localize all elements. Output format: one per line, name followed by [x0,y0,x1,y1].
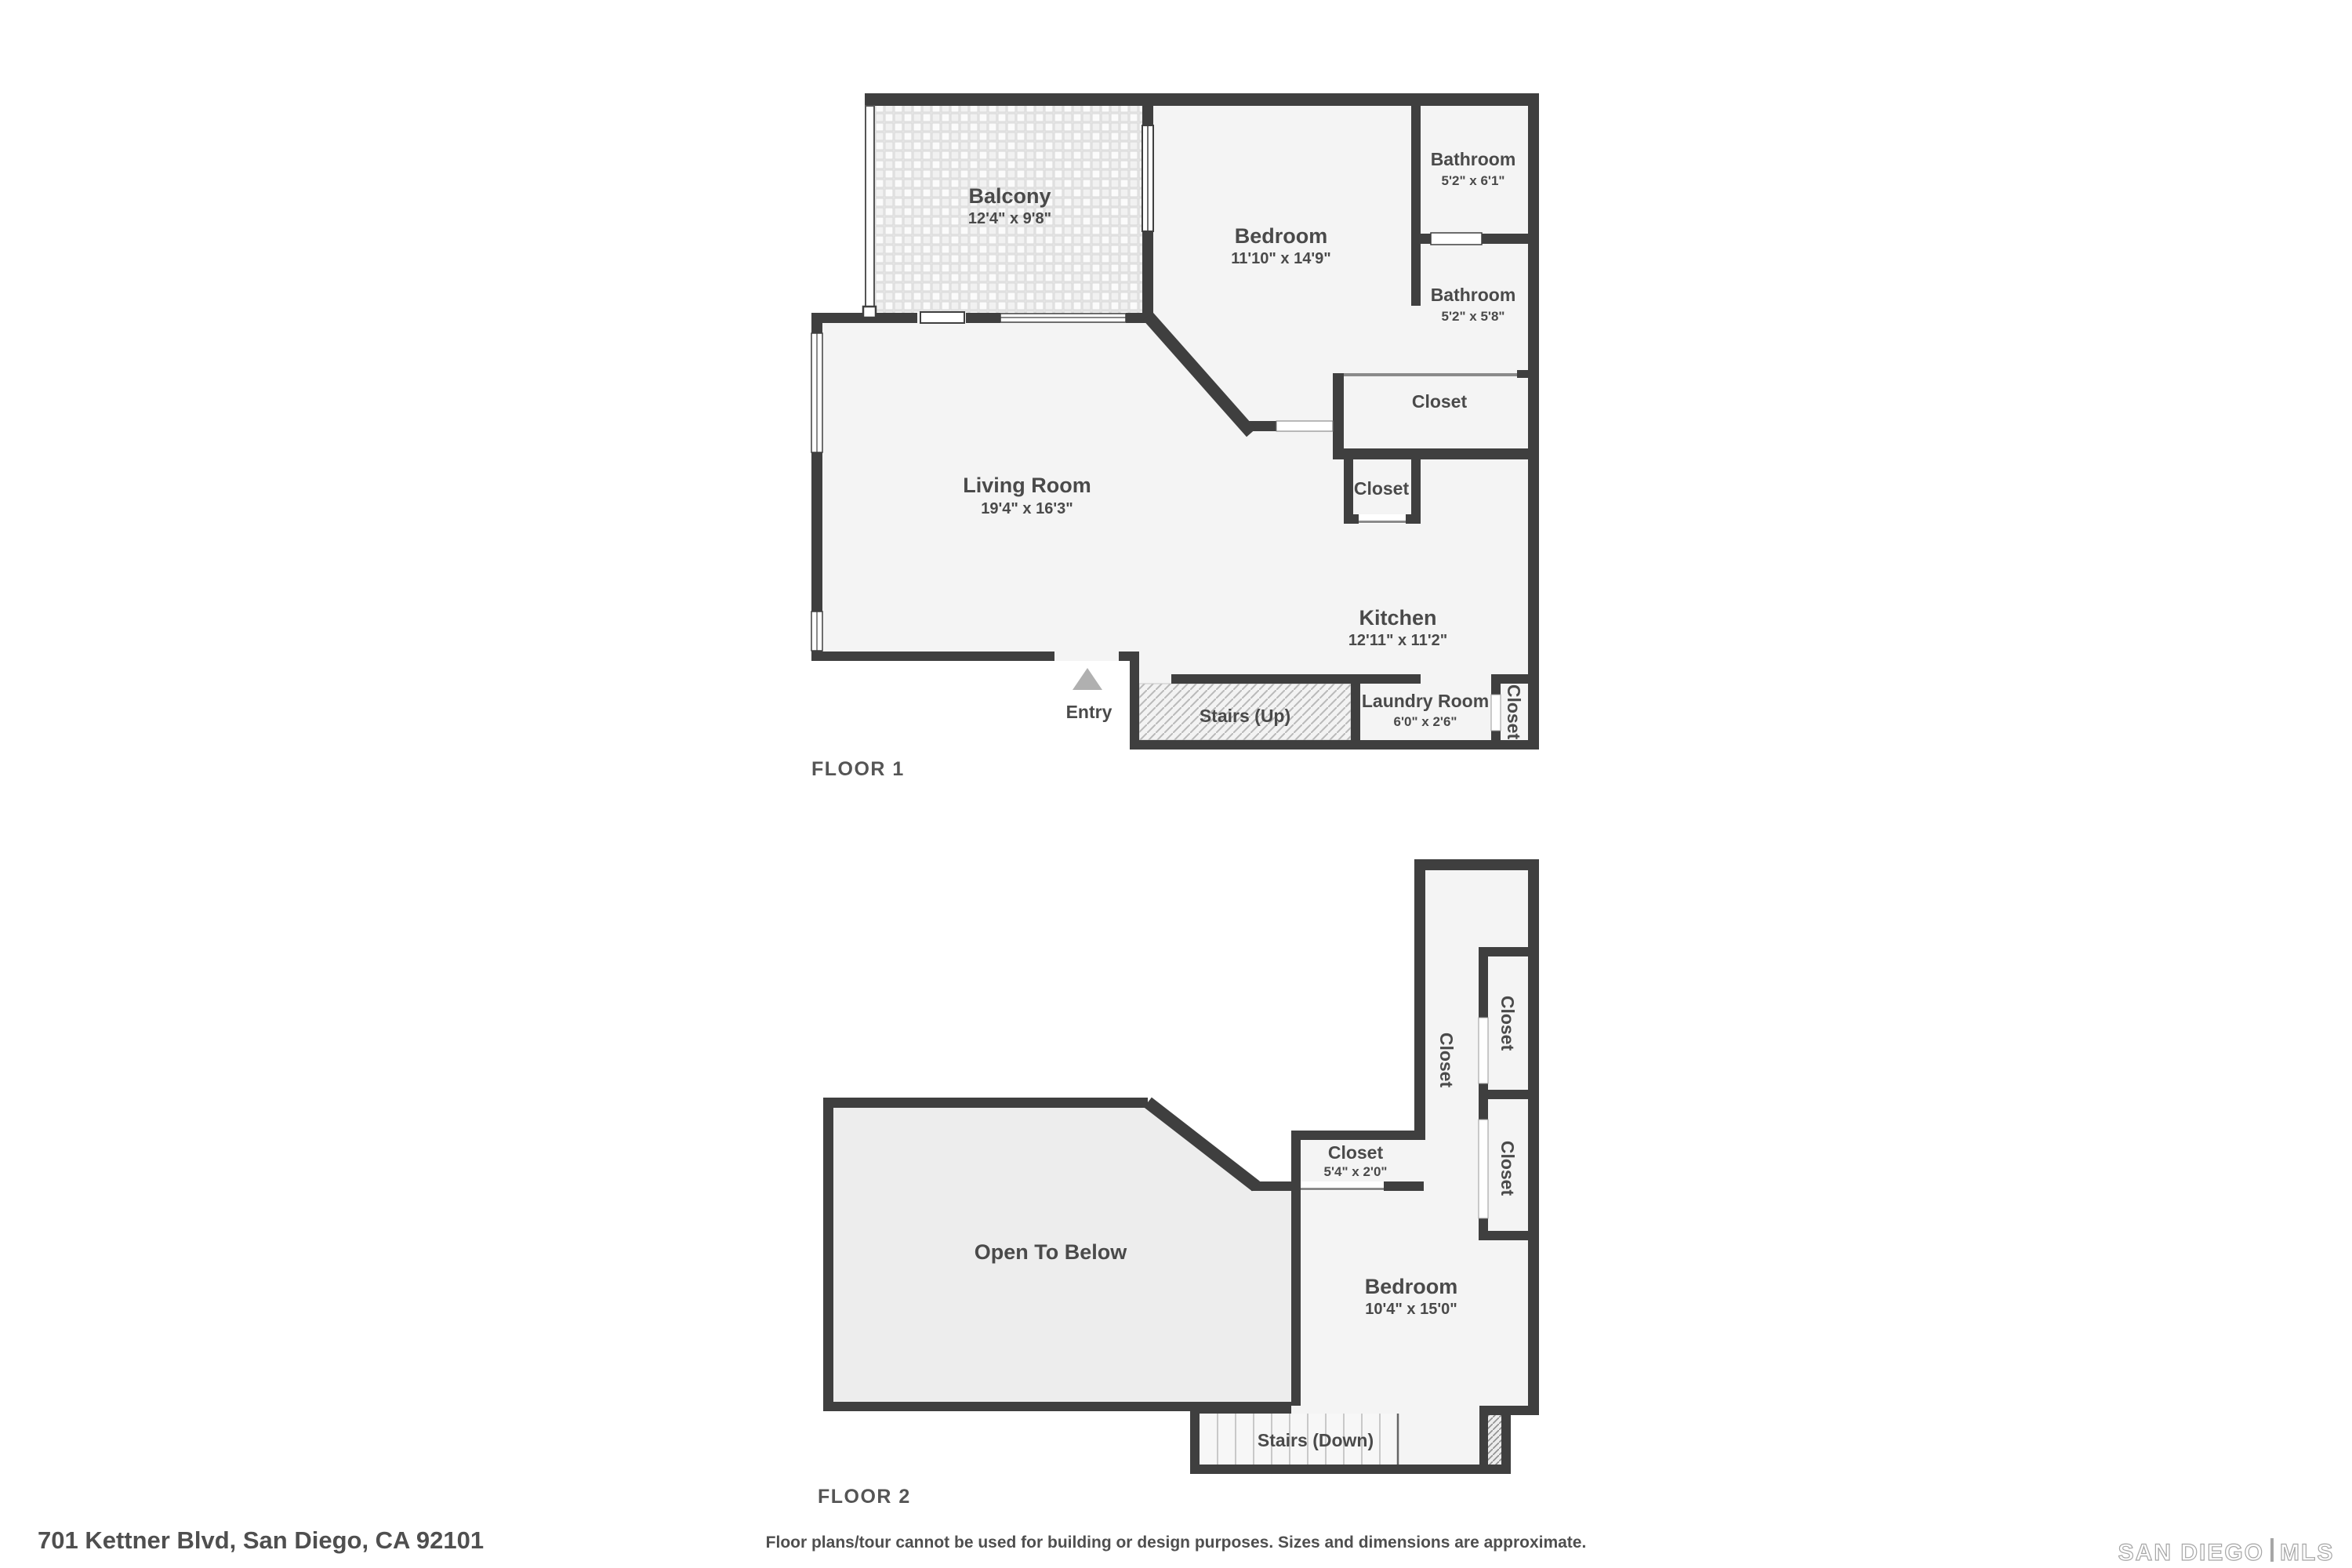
room-label-closet-corridor: Closet [1436,1033,1457,1088]
room-label-entry: Entry [1066,702,1112,722]
floor2-column-area [1414,859,1539,1415]
room-label-stairs-down: Stairs (Down) [1258,1430,1374,1450]
room-label-living: Living Room [963,474,1091,497]
floor1-tag: FLOOR 1 [811,758,905,780]
room-label-closet-hall: Closet [1412,391,1468,412]
entry-arrow-icon [1073,668,1102,690]
mls-logo-right-text: MLS [2280,1540,2334,1566]
footer-disclaimer: Floor plans/tour cannot be used for buil… [766,1534,1587,1552]
floor2-floor-areas [823,859,1539,1474]
room-label-bathroom-bottom: Bathroom [1431,285,1516,305]
kitchen-hall-door [1276,421,1333,431]
room-label-closet-kitchen: Closet [1354,478,1410,499]
mls-logo: SAN DIEGO MLS [2118,1538,2335,1566]
mls-logo-left-text: SAN DIEGO [2118,1540,2264,1566]
room-label-bedroom2: Bedroom [1365,1275,1458,1298]
room-label-open-to-below: Open To Below [975,1240,1127,1264]
floor-plan-canvas: Balcony 12'4" x 9'8" Bedroom 11'10" x 14… [0,0,2352,1568]
room-dims-kitchen: 12'11" x 11'2" [1348,632,1447,649]
room-dims-bedroom1: 11'10" x 14'9" [1231,250,1330,267]
room-label-bathroom-top: Bathroom [1431,149,1516,169]
room-label-stairs-up: Stairs (Up) [1200,706,1290,726]
room-dims-bedroom2: 10'4" x 15'0" [1365,1301,1457,1318]
closet-room-door-line [1301,1188,1384,1190]
floor2-tag: FLOOR 2 [818,1486,911,1508]
floor1-floor-areas [811,93,1539,750]
room-dims-bathroom-top: 5'2" x 6'1" [1442,173,1505,188]
room-label-kitchen: Kitchen [1359,606,1436,630]
closet-hall-door-line [1344,373,1517,376]
room-dims-laundry: 6'0" x 2'6" [1394,714,1457,729]
footer: 701 Kettner Blvd, San Diego, CA 92101 Fl… [38,1526,2334,1566]
room-dims-balcony: 12'4" x 9'8" [968,210,1051,227]
floor2-plan: Closet Closet Closet Closet 5'4" x 2'0" … [818,859,1539,1508]
stairs-chase-hatch [1488,1415,1501,1465]
closet-kitchen-door-line [1359,521,1406,523]
room-label-balcony: Balcony [968,184,1051,208]
mls-logo-separator [2270,1538,2274,1562]
balcony-door [920,312,964,323]
room-label-closet-upper: Closet [1497,996,1518,1051]
room-dims-bathroom-bottom: 5'2" x 5'8" [1442,309,1505,324]
laundry-closet-door [1491,695,1501,731]
closet-lower-door [1479,1120,1488,1218]
footer-address: 701 Kettner Blvd, San Diego, CA 92101 [38,1526,484,1554]
balcony-railing [866,106,874,307]
balcony-railing-endcap [863,307,876,318]
floor1-plan: Balcony 12'4" x 9'8" Bedroom 11'10" x 14… [811,93,1539,780]
room-label-closet-lower: Closet [1497,1141,1518,1196]
room-label-closet-laundry: Closet [1504,684,1524,740]
room-label-closet-room: Closet [1328,1142,1384,1163]
closet-upper-door [1479,1018,1488,1083]
room-label-bedroom1: Bedroom [1235,224,1328,248]
room-label-laundry: Laundry Room [1362,691,1489,711]
room-dims-living: 19'4" x 16'3" [981,500,1073,517]
room-dims-closet-room: 5'4" x 2'0" [1324,1164,1388,1179]
bathroom-door [1431,233,1482,245]
